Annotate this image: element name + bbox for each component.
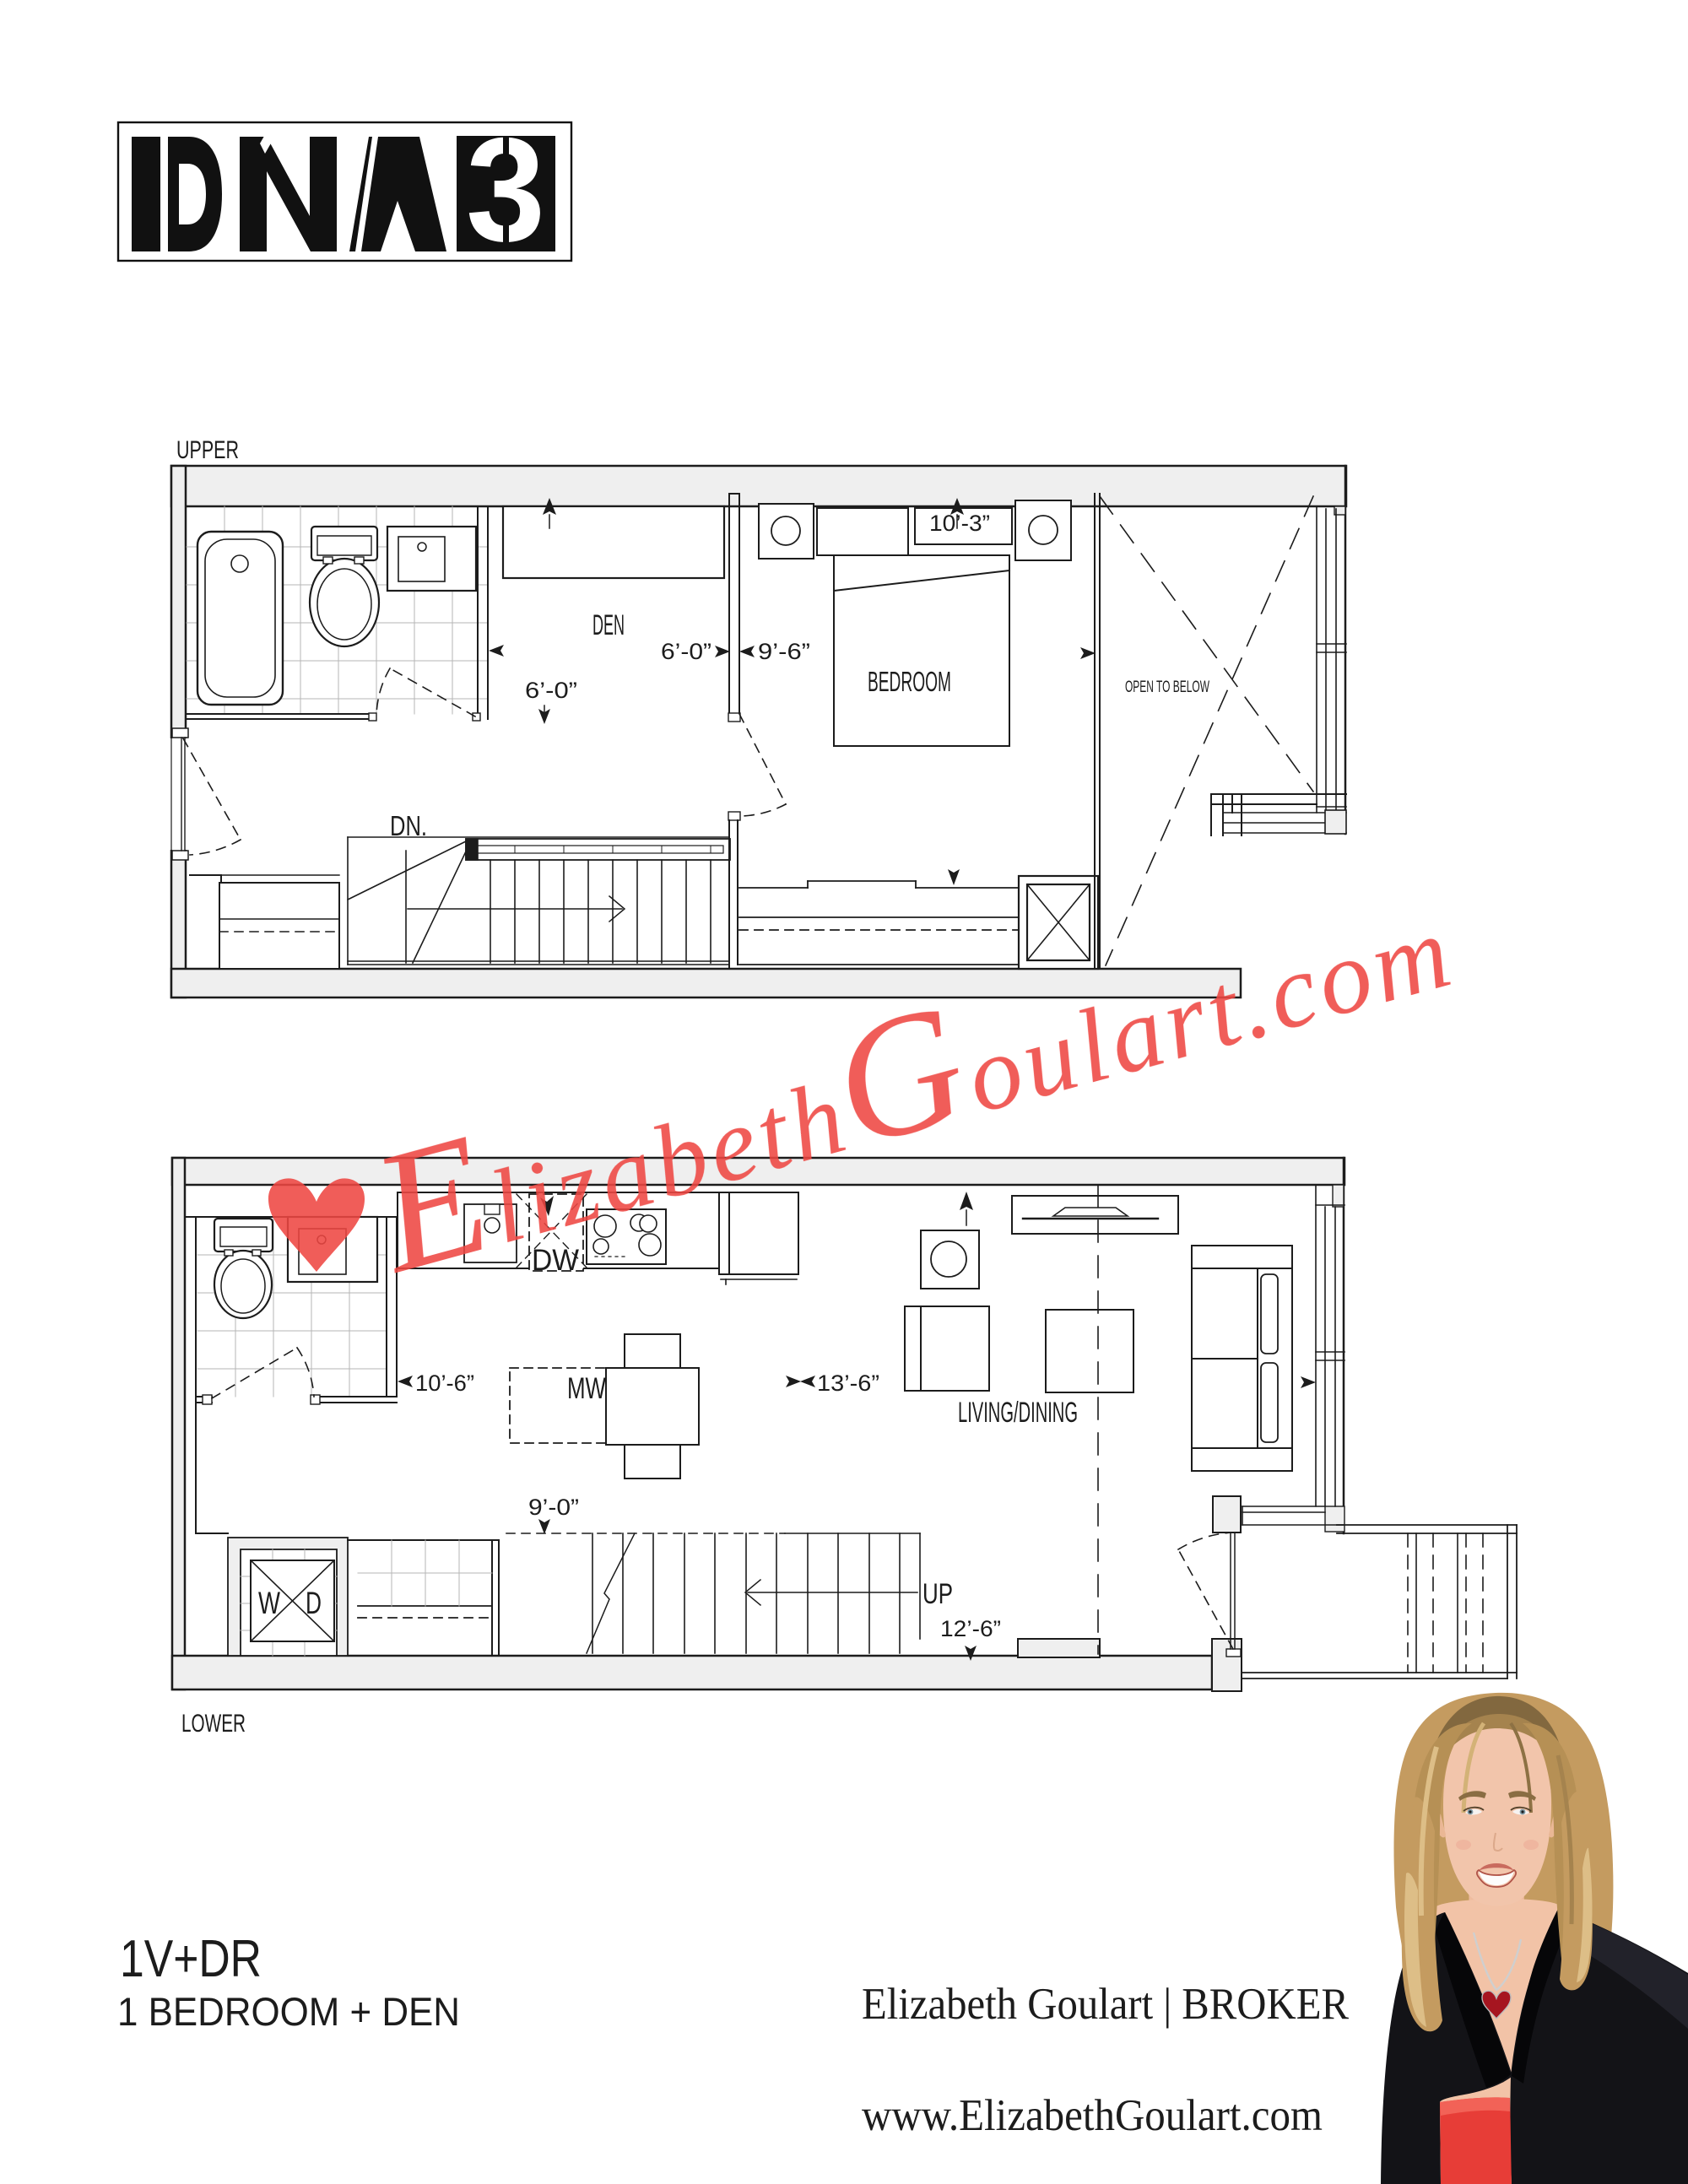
svg-text:ElizabethGoulart.com: ElizabethGoulart.com <box>354 835 1469 1310</box>
svg-text:BEDROOM: BEDROOM <box>868 666 951 697</box>
svg-text:D: D <box>306 1586 322 1620</box>
svg-text:OPEN TO BELOW: OPEN TO BELOW <box>1125 678 1209 696</box>
svg-text:10’-3”: 10’-3” <box>929 511 990 536</box>
svg-text:DEN: DEN <box>592 609 625 641</box>
svg-text:MW: MW <box>567 1372 606 1405</box>
svg-text:UP: UP <box>922 1578 953 1610</box>
svg-text:13’-6”: 13’-6” <box>817 1370 879 1396</box>
svg-text:9’-6”: 9’-6” <box>758 639 810 664</box>
svg-text:10’-6”: 10’-6” <box>415 1370 474 1396</box>
svg-text:6’-0”: 6’-0” <box>525 678 577 703</box>
svg-text:UPPER: UPPER <box>176 436 239 464</box>
svg-text:W: W <box>258 1586 280 1620</box>
svg-text:9’-0”: 9’-0” <box>528 1495 579 1520</box>
svg-text:DN.: DN. <box>390 810 427 841</box>
svg-text:6’-0”: 6’-0” <box>661 639 711 664</box>
svg-text:12’-6”: 12’-6” <box>940 1616 1001 1641</box>
svg-text:LOWER: LOWER <box>181 1710 246 1738</box>
svg-text:www.ElizabethGoulart.com: www.ElizabethGoulart.com <box>862 2091 1323 2140</box>
svg-text:Elizabeth Goulart | BROKER: Elizabeth Goulart | BROKER <box>862 1980 1350 2029</box>
svg-text:1 BEDROOM + DEN: 1 BEDROOM + DEN <box>117 1989 460 2034</box>
svg-text:1V+DR: 1V+DR <box>120 1930 262 1988</box>
svg-text:LIVING/DINING: LIVING/DINING <box>958 1397 1078 1429</box>
